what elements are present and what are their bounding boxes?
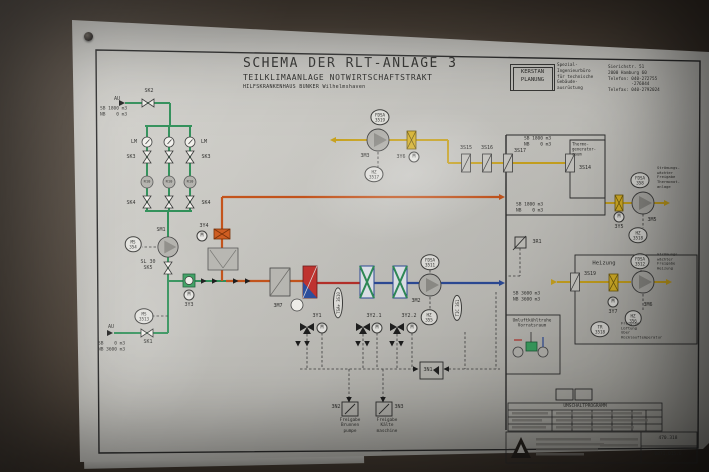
- diagram-label-3s19: 3S19: [584, 271, 596, 277]
- firm-address: Sierichstr. 51 2000 Hamburg 60 Telefon: …: [608, 65, 660, 94]
- diagram-label-fdsa358: FDSA 358: [630, 172, 649, 188]
- kerstan-planung-logo: KERSTAN PLANUNG: [510, 64, 555, 91]
- diagram-label-sl30-sk5: SL 30 SK5: [140, 259, 155, 272]
- diagram-label-stroemung-thermonot: Strömungs- wächter Freigabe Thermonot- a…: [657, 166, 680, 190]
- diagram-label-r10-1: R10: [144, 180, 151, 185]
- diagram-label-umschaltprogramm: UMSCHALTPROGRAMM: [563, 404, 606, 410]
- diagram-label-3s14: 3S14: [579, 165, 591, 171]
- diagram-label-tr3518: TR 3518: [590, 321, 609, 337]
- diagram-label-sb-bottom: SB 0 m3 NB 3600 m3: [98, 341, 125, 352]
- diagram-label-fdsa3519: FDSA 3519: [370, 109, 389, 125]
- diagram-label-heizung: Heizung: [592, 261, 615, 268]
- diagram-label-m-3y4: M: [197, 231, 208, 242]
- diagram-label-m-3y5: M: [614, 212, 625, 223]
- diagram-label-sk3-right: SK3: [201, 154, 210, 160]
- diagram-label-3y1: 3Y1: [312, 313, 321, 319]
- diagram-label-sb-right2: SB 1800 m3 NB 0 m3: [516, 202, 543, 213]
- diagram-label-hz3517: HZ 3517: [364, 166, 383, 182]
- page-subtitle-2: HILFSKRANKENHAUS BUNKER Wilhelmshaven: [243, 84, 458, 90]
- diagram-label-lm-left: LM: [131, 139, 137, 145]
- diagram-label-3n2: 3N2: [331, 404, 340, 410]
- diagram-label-3n3: 3N3: [394, 404, 403, 410]
- diagram-label-3y2-1: 3Y2.1: [366, 313, 381, 319]
- photo-of-hvac-schematic-poster: SCHEMA DER RLT-ANLAGE 3 TEILKLIMAANLAGE …: [0, 0, 709, 472]
- diagram-label-sb-3600: SB 3600 m3 NB 3600 m3: [513, 291, 540, 302]
- diagram-label-ms3513: MS 3513: [134, 308, 153, 324]
- diagram-label-sk4-left: SK4: [126, 200, 135, 206]
- diagram-label-3n1: 3N1: [423, 367, 432, 373]
- diagram-label-m-3y1: M: [317, 323, 328, 334]
- diagram-label-r10-3: R10: [187, 180, 194, 185]
- diagram-label-3y3: 3Y3: [184, 302, 193, 308]
- diagram-label-3r1: 3R1: [532, 239, 541, 245]
- diagram-label-3m5: 3M5: [647, 217, 656, 223]
- diagram-label-3s15: 3S15: [460, 145, 472, 151]
- diagram-label-fdsa3512: FDSA 3512: [630, 253, 649, 269]
- diagram-label-hz355: HZ 355: [421, 309, 438, 325]
- diagram-label-umluftkuehltruhe: Umluftkühltruhe Vorratsraum: [513, 319, 552, 330]
- schematic-title-block: SCHEMA DER RLT-ANLAGE 3 TEILKLIMAANLAGE …: [243, 56, 458, 90]
- diagram-label-ms354: MS 354: [125, 236, 142, 252]
- diagram-label-3m2: 3M2: [411, 298, 420, 304]
- diagram-label-m-3y2-1: M: [372, 323, 383, 334]
- diagram-label-tic-3s1: TIC 3S1: [452, 295, 462, 321]
- diagram-label-tsa-3s10: TSA+ 3S10: [333, 288, 343, 319]
- diagram-label-m-3y3: M: [184, 290, 195, 301]
- diagram-label-3y7: 3Y7: [608, 309, 617, 315]
- diagram-label-sk4-right: SK4: [201, 200, 210, 206]
- diagram-label-sk2: SK2: [144, 88, 153, 94]
- diagram-label-m-3y6: M: [409, 152, 420, 163]
- diagram-label-freigabe-brunnenpumpe: Freigabe Brunnen pumpe: [340, 418, 361, 434]
- diagram-label-sb-right1: SB 1800 m3 NB 0 m3: [524, 136, 551, 147]
- diagram-label-sm1: SM1: [156, 227, 165, 233]
- diagram-label-drawing-no: 470.318: [659, 436, 678, 442]
- diagram-label-fdsa3511: FDSA 3511: [420, 254, 439, 270]
- diagram-label-au-bottom: AU: [108, 324, 114, 330]
- diagram-label-3y2-2: 3Y2.2: [401, 313, 416, 319]
- kerstan-logo-text: KERSTAN PLANUNG: [513, 67, 553, 91]
- diagram-label-3y4: 3Y4: [199, 223, 208, 229]
- diagram-label-sk3-left: SK3: [126, 154, 135, 160]
- diagram-label-au-top: AU: [114, 96, 120, 102]
- diagram-label-sk1: SK1: [143, 339, 152, 345]
- diagram-label-lm-right: LM: [201, 139, 207, 145]
- diagram-label-3y6: 3Y6: [396, 154, 405, 160]
- diagram-label-3y5: 3Y5: [614, 224, 623, 230]
- diagram-label-stroemung-heizung: Strömungs- wächter Freigabe Heizung: [657, 253, 680, 272]
- diagram-label-hz3518: HZ 3518: [628, 227, 647, 243]
- diagram-label-r10-2: R10: [166, 180, 173, 185]
- diagram-label-3s17: 3S17: [514, 148, 526, 154]
- diagram-label-3s16: 3S16: [481, 145, 493, 151]
- diagram-label-doc-no: 0871.015.0: [654, 452, 681, 458]
- diagram-label-sb-top: SB 1800 m3 NB 0 m3: [100, 106, 127, 117]
- diagram-label-freigabe-kaeltemaschine: Freigabe Kälte maschine: [377, 418, 398, 434]
- diagram-label-3m7: 3M7: [273, 303, 282, 309]
- diagram-label-freigabe-lueftung: Freigabe Lüftung über Rücklauftemperatur: [621, 322, 662, 341]
- diagram-label-thermogeneratorraum: Thermo- generator- raum: [572, 142, 596, 157]
- diagram-label-3m3: 3M3: [360, 153, 369, 159]
- diagram-label-m-3y7: M: [608, 297, 619, 308]
- firm-description: Spezial- Ingenieurbüro für technische Ge…: [557, 63, 593, 92]
- page-subtitle: TEILKLIMAANLAGE NOTWIRTSCHAFTSTRAKT: [243, 73, 458, 82]
- diagram-label-3m6: 3M6: [643, 302, 652, 308]
- page-title: SCHEMA DER RLT-ANLAGE 3: [243, 56, 458, 71]
- diagram-label-m-3y2-2: M: [407, 323, 418, 334]
